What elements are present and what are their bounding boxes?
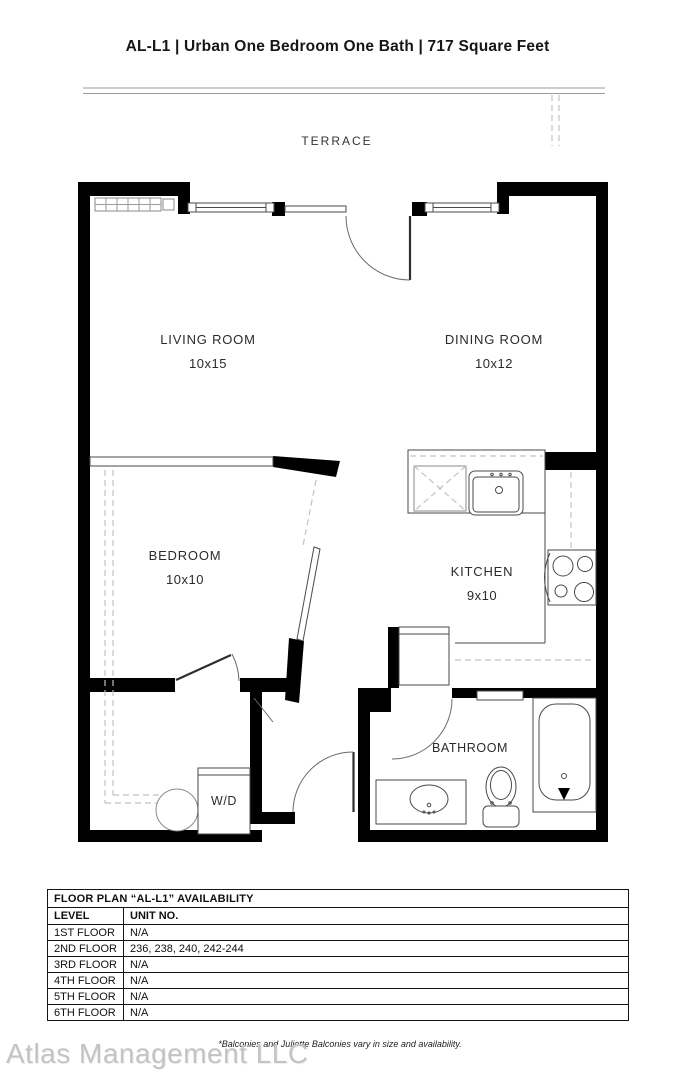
room-label-dining: DINING ROOM	[445, 332, 543, 347]
room-dims-dining: 10x12	[475, 356, 513, 371]
half-wall-bedroom	[90, 457, 273, 466]
table-row: 5TH FLOOR N/A	[48, 989, 629, 1005]
terrace-door	[346, 216, 410, 280]
units-cell: N/A	[124, 957, 629, 973]
vanity-sink	[376, 780, 466, 824]
level-cell: 4TH FLOOR	[48, 973, 124, 989]
wall-niche	[477, 691, 523, 700]
bathroom-fixtures	[376, 691, 596, 827]
room-dims-living: 10x15	[189, 356, 227, 371]
closet-fixtures: W/D	[105, 470, 250, 834]
availability-table: FLOOR PLAN “AL-L1” AVAILABILITY LEVEL UN…	[47, 889, 629, 1021]
terrace-area: TERRACE	[83, 88, 605, 148]
units-cell: N/A	[124, 989, 629, 1005]
washer	[156, 789, 198, 831]
table-header-row: LEVEL UNIT NO.	[48, 908, 629, 925]
bedroom-closet-door	[176, 654, 239, 681]
units-cell: N/A	[124, 1005, 629, 1021]
level-cell: 3RD FLOOR	[48, 957, 124, 973]
level-cell: 2ND FLOOR	[48, 941, 124, 957]
doors	[176, 216, 452, 812]
kitchen-sink	[469, 471, 523, 515]
room-dims-kitchen: 9x10	[467, 588, 497, 603]
wall-segment-thin	[285, 206, 346, 212]
units-cell: N/A	[124, 973, 629, 989]
level-cell: 6TH FLOOR	[48, 1005, 124, 1021]
window-living	[188, 203, 274, 212]
level-cell: 5TH FLOOR	[48, 989, 124, 1005]
table-row: 4TH FLOOR N/A	[48, 973, 629, 989]
floor-plan-drawing: TERRACE	[0, 0, 675, 880]
room-label-kitchen: KITCHEN	[451, 564, 514, 579]
table-row: 2ND FLOOR 236, 238, 240, 242-244	[48, 941, 629, 957]
column-header-level: LEVEL	[48, 908, 124, 925]
company-watermark: Atlas Management LLC	[6, 1038, 309, 1070]
entry-door	[293, 752, 354, 812]
floor-plan-page: AL-L1 | Urban One Bedroom One Bath | 717…	[0, 0, 675, 1080]
table-row: 3RD FLOOR N/A	[48, 957, 629, 973]
level-cell: 1ST FLOOR	[48, 925, 124, 941]
baseboard-heater	[95, 198, 174, 211]
column-header-unit-no: UNIT NO.	[124, 908, 629, 925]
dishwasher	[414, 466, 466, 511]
window-dining	[425, 203, 499, 212]
table-row: 1ST FLOOR N/A	[48, 925, 629, 941]
room-label-bathroom: BATHROOM	[432, 741, 508, 755]
table-title: FLOOR PLAN “AL-L1” AVAILABILITY	[48, 890, 629, 908]
bedroom-sliding-door	[297, 480, 320, 641]
bathtub	[533, 698, 596, 812]
laundry-label: W/D	[211, 794, 237, 808]
windows	[90, 203, 499, 466]
refrigerator	[399, 627, 449, 685]
room-label-living: LIVING ROOM	[160, 332, 255, 347]
terrace-label: TERRACE	[301, 134, 372, 148]
washer-dryer-unit: W/D	[198, 768, 250, 834]
toilet	[483, 767, 519, 827]
units-cell: 236, 238, 240, 242-244	[124, 941, 629, 957]
stove	[545, 550, 597, 605]
table-title-row: FLOOR PLAN “AL-L1” AVAILABILITY	[48, 890, 629, 908]
units-cell: N/A	[124, 925, 629, 941]
table-row: 6TH FLOOR N/A	[48, 1005, 629, 1021]
room-label-bedroom: BEDROOM	[149, 548, 222, 563]
room-dims-bedroom: 10x10	[166, 572, 204, 587]
